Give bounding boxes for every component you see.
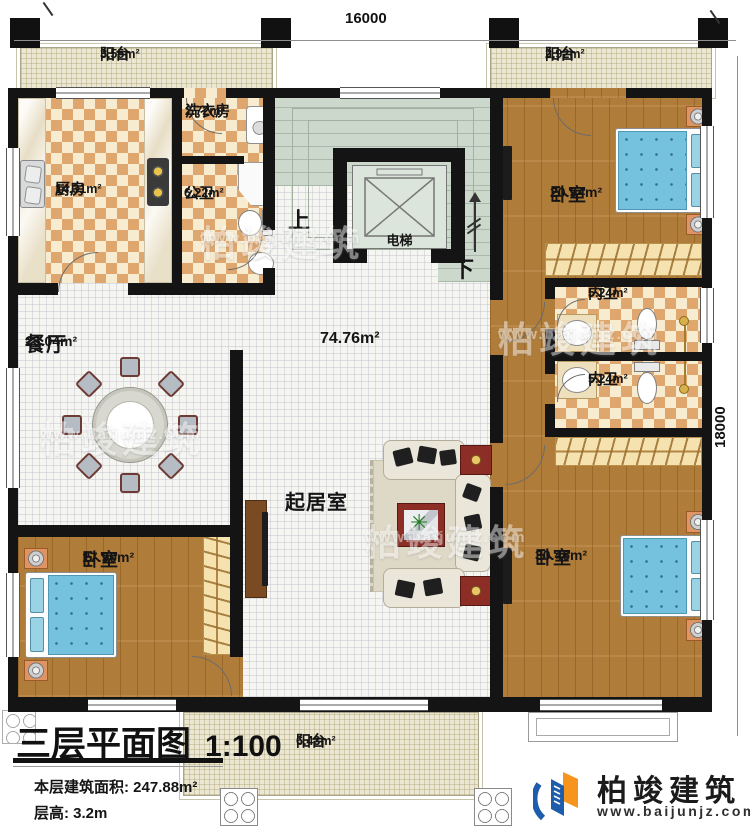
dimension-top: 16000 bbox=[345, 10, 425, 27]
wall-dining-bedroom bbox=[18, 525, 243, 537]
floor-height-text: 层高: 3.2m bbox=[34, 802, 107, 823]
elevator-shaft-wall bbox=[333, 148, 347, 263]
towel-knob bbox=[679, 384, 689, 394]
cooktop bbox=[147, 158, 169, 206]
dining-chair bbox=[178, 415, 198, 435]
nightstand bbox=[24, 660, 48, 681]
wall-hall-suite bbox=[490, 487, 503, 712]
stairs-up-label: 上 bbox=[288, 203, 310, 235]
sink-basin bbox=[24, 165, 42, 184]
sofa-cushion bbox=[462, 543, 481, 561]
window-bedroom-br-south bbox=[540, 699, 662, 711]
wall-bath-stairs bbox=[263, 268, 275, 283]
stairs-arrow-head bbox=[469, 192, 481, 202]
column bbox=[10, 18, 40, 48]
wall-bath-south bbox=[182, 283, 275, 295]
dimension-line-top bbox=[14, 40, 736, 41]
floor-area-text: 本层建筑面积: 247.88m² bbox=[34, 776, 197, 797]
sink-basin bbox=[24, 186, 42, 205]
toilet-bowl bbox=[238, 210, 262, 236]
plant-icon: ✳ bbox=[410, 510, 428, 536]
dining-chair bbox=[62, 415, 82, 435]
floor-plan: 16000 18000 阳台 3.55m² 阳台 2.92m² bbox=[0, 0, 750, 836]
bed-bottom-right bbox=[620, 535, 710, 617]
wall-bath-stairs bbox=[263, 98, 275, 230]
elevator-shaft-wall bbox=[333, 249, 367, 263]
column bbox=[698, 18, 728, 48]
elevator-shaft-wall bbox=[451, 148, 465, 263]
tv-bedroom-tr bbox=[503, 146, 512, 200]
bed-blanket bbox=[623, 538, 687, 614]
column bbox=[261, 18, 291, 48]
title-underline-thin bbox=[13, 766, 223, 767]
wall-corridor-bath bbox=[545, 404, 555, 428]
sofa-cushion bbox=[464, 514, 483, 532]
door-opening-laundry bbox=[184, 88, 226, 98]
window-kitchen-west bbox=[6, 148, 20, 236]
wardrobe-top-right bbox=[545, 243, 702, 276]
toilet-tank bbox=[634, 362, 660, 372]
wall-kitchen-laundry bbox=[172, 98, 182, 283]
window-stairs-north bbox=[340, 87, 440, 99]
wall-dining-hall bbox=[230, 350, 243, 525]
toilet-bowl bbox=[637, 372, 657, 404]
towel-knob bbox=[679, 316, 689, 326]
tv-living bbox=[262, 512, 268, 586]
porch-outline bbox=[528, 712, 678, 742]
sofa-right bbox=[455, 474, 491, 572]
wall-kitchen-south bbox=[8, 283, 58, 295]
sofa-cushion bbox=[392, 447, 413, 467]
side-table bbox=[460, 445, 492, 475]
sofa-bottom bbox=[383, 568, 465, 608]
sliding-door-living-south bbox=[300, 699, 428, 711]
wall-hall-suite bbox=[490, 355, 503, 443]
porch-outline-inner bbox=[536, 718, 670, 736]
column-symbol bbox=[474, 788, 512, 826]
dining-chair bbox=[120, 357, 140, 377]
kitchen-sink bbox=[20, 160, 45, 208]
wall-kitchen-south bbox=[128, 283, 182, 295]
side-table bbox=[460, 576, 492, 606]
window-dining-west bbox=[6, 368, 20, 488]
bed-blanket bbox=[48, 575, 114, 655]
wall-hall-suite bbox=[490, 88, 503, 300]
sofa-cushion bbox=[439, 449, 457, 466]
window-bedroom-bl-west bbox=[6, 573, 20, 657]
stairs-down-label: 下 bbox=[452, 252, 474, 284]
wall-bath-south2 bbox=[545, 428, 702, 437]
nightstand bbox=[24, 548, 48, 569]
coffee-table: ✳ bbox=[397, 503, 445, 547]
bed-blanket bbox=[618, 131, 687, 210]
sofa-cushion bbox=[423, 578, 444, 597]
column-symbol bbox=[220, 788, 258, 826]
bed-top-right bbox=[615, 128, 710, 213]
dimension-line-right bbox=[737, 56, 738, 736]
tv-bedroom-br bbox=[503, 548, 512, 604]
elevator-shaft-wall bbox=[333, 148, 465, 162]
wall-corridor-bath bbox=[545, 329, 555, 374]
column bbox=[489, 18, 519, 48]
wall-corridor-bath bbox=[545, 287, 555, 299]
toilet-tank bbox=[634, 340, 660, 350]
sofa-cushion bbox=[417, 446, 438, 465]
bed-pillow bbox=[30, 617, 44, 652]
dining-table-top bbox=[106, 401, 154, 449]
bed-pillow bbox=[30, 578, 44, 613]
elevator-label: 电梯 bbox=[352, 230, 447, 249]
dimension-right: 18000 bbox=[712, 352, 734, 448]
sofa-cushion bbox=[462, 483, 482, 503]
wall-bedroom-bl-east bbox=[230, 537, 243, 657]
title-underline bbox=[13, 758, 223, 763]
dimension-tick-left bbox=[43, 2, 54, 16]
dining-chair bbox=[120, 473, 140, 493]
window-bedroom-tr-east bbox=[700, 126, 714, 218]
window-kitchen-north bbox=[56, 87, 150, 99]
wardrobe-bottom-right bbox=[555, 437, 702, 466]
wall-bath-divider bbox=[545, 352, 702, 361]
brand-website: www.baijunjz.com bbox=[597, 803, 750, 819]
bed-bottom-left bbox=[25, 572, 117, 658]
sofa-cushion bbox=[395, 579, 416, 598]
window-bath-east bbox=[700, 288, 714, 343]
brand-logo-icon bbox=[533, 762, 591, 826]
door-opening-balcony-tr bbox=[550, 88, 626, 98]
sofa-top bbox=[383, 440, 465, 480]
window-bedroom-bl-south bbox=[88, 699, 176, 711]
wardrobe-bedroom-bl bbox=[203, 533, 231, 655]
toilet-bowl bbox=[637, 308, 657, 340]
window-bedroom-br-east bbox=[700, 520, 714, 620]
wall-laundry-divider bbox=[182, 156, 244, 164]
